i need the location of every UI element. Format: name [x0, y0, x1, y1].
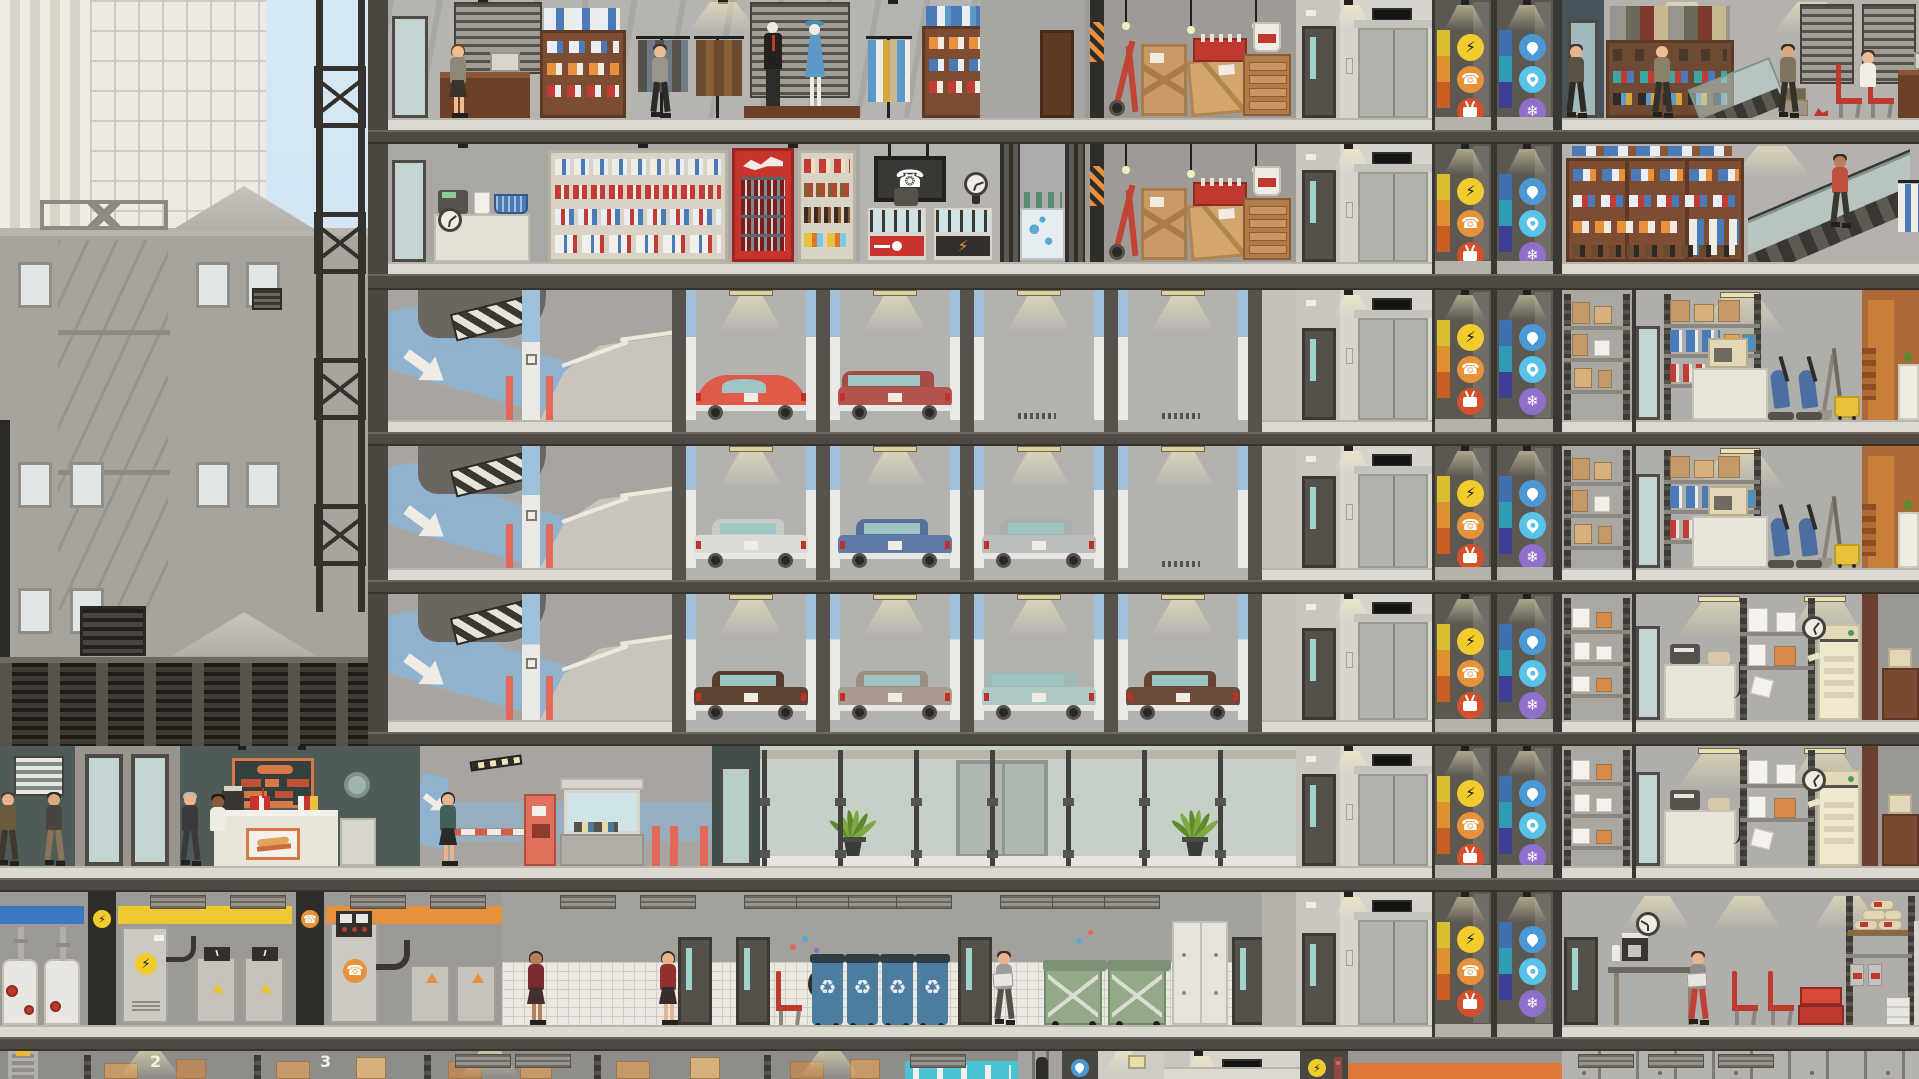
clothing-shopper[interactable] [649, 44, 671, 118]
electrical-riser[interactable]: ⚡☎ [1432, 290, 1494, 432]
mop-bucket [1834, 544, 1860, 566]
housekeeping-office[interactable] [1636, 290, 1862, 432]
curtain-mullion [990, 750, 995, 866]
pedestrian-1[interactable] [0, 792, 19, 866]
safety-post [546, 376, 553, 420]
parked-car-classic[interactable] [836, 667, 954, 719]
cafe-server[interactable] [207, 794, 229, 836]
electrical-riser[interactable]: ⚡☎ [1432, 0, 1494, 130]
pump-unit [2, 959, 38, 1025]
shaft-lamp [1461, 892, 1469, 897]
riser-stripe [1499, 82, 1512, 108]
taillight [696, 393, 701, 401]
room-door[interactable] [1232, 937, 1262, 1025]
dumpster[interactable] [1044, 967, 1102, 1025]
plumbing-riser[interactable]: ❄ [1494, 290, 1556, 432]
elevator-lobby[interactable] [1296, 144, 1434, 274]
shoe-shopper-1[interactable] [1565, 44, 1587, 118]
parked-car-wagon[interactable] [836, 367, 954, 419]
shaft-lamp [1461, 144, 1469, 149]
dress-rack[interactable] [866, 28, 912, 118]
leg [538, 1004, 542, 1020]
tower-wall [368, 594, 388, 732]
warehouse-shelving[interactable]: 234 [0, 1051, 905, 1079]
folded-stacks [547, 41, 619, 53]
elevator-lobby[interactable] [1296, 892, 1434, 1037]
door-split [1393, 30, 1395, 116]
shoe-shopper-2[interactable] [1651, 44, 1673, 118]
riser-stripe [1499, 502, 1512, 528]
shoe-cashier[interactable] [1857, 50, 1879, 92]
parked-car-wagon[interactable] [980, 667, 1098, 719]
equipment-box[interactable] [456, 965, 496, 1023]
cabinet-seam [1864, 1051, 1867, 1079]
exterior-scaffold [312, 0, 368, 612]
supply-closet[interactable] [1562, 446, 1632, 580]
meter-box[interactable] [196, 957, 236, 1023]
storage-box [616, 1061, 650, 1079]
floor-surface [1562, 866, 1632, 878]
cosmetics-stand[interactable] [1000, 144, 1085, 274]
folded-stacks [1573, 221, 1681, 233]
electrical-room[interactable]: ⚡ ⚡ [84, 892, 292, 1037]
plumbing-riser[interactable]: ❄ [1494, 446, 1556, 580]
office-sliver[interactable] [1862, 746, 1919, 878]
parking-level-1[interactable]: ⚡☎ ❄ [0, 290, 1919, 432]
room-door[interactable] [958, 937, 992, 1025]
maintenance-staff-2[interactable] [657, 951, 679, 1025]
light-glow [1007, 296, 1071, 332]
chair-leg [1871, 104, 1875, 118]
bay-column [1248, 446, 1262, 580]
electrical-riser[interactable]: ⚡☎ [1432, 594, 1494, 732]
game-viewport[interactable]: ⚡☎ ❄ [0, 0, 1919, 1079]
glass-door[interactable] [720, 766, 752, 866]
cafe-customer[interactable] [179, 792, 201, 866]
floor-surface [0, 1025, 84, 1037]
pump-unit [44, 959, 80, 1025]
elevator-lobby[interactable] [1296, 594, 1434, 732]
store-door[interactable] [392, 160, 426, 262]
mullion-clip [760, 798, 770, 806]
paper-stack [1776, 764, 1796, 784]
phone-icon: ☎ [1457, 66, 1484, 93]
cable-room[interactable] [1348, 1051, 1562, 1079]
service-door[interactable] [1636, 626, 1660, 720]
floor-retail-top[interactable]: ⚡☎ ❄ [0, 0, 1919, 130]
leg [180, 830, 190, 861]
spray-sparkle [1076, 938, 1082, 944]
elevator-lobby[interactable] [1296, 290, 1434, 432]
elevator-lobby[interactable] [1296, 746, 1434, 878]
clothing-clerk[interactable] [447, 44, 469, 118]
white-bucket [1253, 166, 1281, 196]
meter-box[interactable] [244, 957, 284, 1023]
ticket-machine[interactable] [524, 794, 556, 866]
supply-closet[interactable] [1562, 290, 1632, 432]
brick-rack [1862, 504, 1876, 556]
toolbox [1798, 1005, 1844, 1025]
core-wall [1262, 594, 1296, 732]
light-glow [719, 296, 783, 332]
dumpster-lid [1107, 960, 1171, 971]
plumbing-riser[interactable]: ❄ [1494, 0, 1556, 130]
stair-door[interactable] [1302, 774, 1336, 866]
telecom-room[interactable]: ☎ ☎ [292, 892, 502, 1037]
cafe-sliver[interactable] [1862, 446, 1919, 580]
bay-light [1161, 594, 1205, 600]
apparel-store[interactable] [1562, 144, 1919, 274]
storage-box [176, 1059, 206, 1079]
lobby-inner-door [956, 760, 1048, 858]
torso [46, 805, 62, 831]
office-sliver[interactable] [1862, 594, 1919, 732]
pillar-sign [526, 510, 537, 521]
basement-1[interactable]: ⚡ ⚡ ☎ [0, 892, 1919, 1037]
call-button-panel[interactable] [1346, 950, 1353, 966]
riser-stripe [1499, 346, 1512, 372]
parking-ramp[interactable] [388, 446, 672, 580]
cement-sack [1884, 910, 1902, 920]
riser-stripe [1437, 174, 1450, 200]
parked-car-classic[interactable] [1124, 667, 1242, 719]
leg [670, 1004, 674, 1020]
water-riser-door[interactable] [1062, 1051, 1098, 1079]
call-button-panel[interactable] [1346, 348, 1353, 364]
leg [1830, 192, 1840, 223]
parked-car-classic[interactable] [692, 667, 810, 719]
wheel [922, 705, 937, 720]
elevator-doors[interactable] [1358, 318, 1428, 420]
water-icon [1519, 926, 1546, 953]
flame-core [1529, 76, 1536, 83]
car-window [1152, 675, 1208, 686]
service-door[interactable] [1636, 474, 1660, 568]
parking-gate[interactable] [448, 746, 712, 878]
cabinet-seam [1636, 1051, 1639, 1079]
red-heels [1814, 108, 1828, 116]
clothing-store[interactable] [388, 0, 980, 130]
red-chair [1730, 971, 1760, 1025]
drop-shape [1073, 1061, 1086, 1074]
elevator-lobby[interactable] [1296, 0, 1434, 130]
dumpster-lid [1043, 960, 1107, 971]
parking-bays[interactable] [672, 446, 1262, 580]
shirt-stacks-top [926, 6, 980, 26]
glass-lobby[interactable] [760, 746, 1296, 878]
fax-machine [1670, 644, 1700, 664]
call-button-panel[interactable] [1346, 804, 1353, 820]
phone-icon: ☎ [1457, 356, 1484, 383]
stair-door[interactable] [1302, 628, 1336, 720]
floor-surface [1296, 568, 1434, 580]
elevator-doors[interactable] [1358, 172, 1428, 262]
flame-shape [1524, 963, 1540, 979]
recycling-bin[interactable]: ♻ [882, 961, 913, 1025]
mullion-clip [1139, 798, 1150, 806]
entrance-doors[interactable] [75, 746, 180, 878]
floor-surface [420, 866, 448, 878]
floor-surface [388, 262, 860, 274]
display-case[interactable] [866, 206, 928, 262]
stair-door[interactable] [1302, 476, 1336, 568]
copier-tray [1824, 802, 1854, 808]
plumbing-riser[interactable]: ❄ [1494, 892, 1556, 1037]
copy-room[interactable] [1636, 746, 1862, 878]
hanging-light [470, 754, 523, 771]
bay-column [1248, 290, 1262, 432]
elevator-doors[interactable] [1358, 622, 1428, 720]
recycling-room[interactable]: ♻♻♻♻ [730, 892, 950, 1037]
parking-ramp[interactable] [388, 594, 672, 732]
ceiling-vent [350, 895, 406, 909]
stair-door[interactable] [1302, 170, 1336, 262]
curtain-mullion [1218, 750, 1223, 866]
male-mannequin[interactable] [760, 22, 786, 106]
shoe [538, 1020, 546, 1025]
paper-stack [1748, 644, 1766, 666]
dumpsters[interactable] [1044, 955, 1174, 1025]
riser-stripe [1437, 346, 1450, 372]
floor-surface [448, 866, 712, 878]
pedestrian-2[interactable] [43, 792, 65, 866]
chair-leg [1839, 104, 1843, 118]
shaft-lamp [1461, 594, 1469, 599]
recycling-bins[interactable]: ♻♻♻♻ [812, 955, 948, 1025]
vacant-room[interactable] [980, 0, 1085, 130]
leg [1699, 989, 1709, 1020]
bay-light [873, 594, 917, 600]
chair-leg [1771, 1011, 1775, 1025]
clothes-rack[interactable] [1898, 170, 1919, 262]
parking-level-2[interactable]: ⚡☎ ❄ [0, 446, 1919, 580]
service-elevator[interactable] [1164, 1051, 1300, 1079]
bulb [1187, 26, 1195, 34]
floor-slab [368, 432, 1919, 446]
elevator-doors[interactable] [1358, 28, 1428, 118]
phone-icon: ☎ [1457, 210, 1484, 237]
wheel [708, 705, 723, 720]
clothes-rack[interactable] [694, 26, 744, 118]
rack-upright [254, 1055, 261, 1079]
security-booth[interactable] [560, 778, 644, 866]
leg [1789, 82, 1799, 113]
parking-bays[interactable] [672, 594, 1262, 732]
basement-hall[interactable] [1098, 1051, 1164, 1079]
riser-stripe [1499, 200, 1512, 226]
plumbing-riser[interactable]: ❄ [1494, 594, 1556, 732]
spray-sparkle [790, 944, 796, 950]
parking-ramp[interactable] [388, 290, 672, 432]
recycling-bin[interactable]: ♻ [847, 961, 878, 1025]
housekeeping-office[interactable] [1636, 446, 1862, 580]
parking-bays[interactable] [672, 290, 1262, 432]
drawer [1249, 62, 1287, 71]
bulb [1122, 22, 1130, 30]
hanging-bulb [1125, 144, 1127, 166]
store-door[interactable] [392, 16, 428, 118]
shoe [56, 861, 65, 866]
maintenance-staff-1[interactable] [525, 951, 547, 1025]
shoe-shopper-3[interactable] [1777, 44, 1799, 118]
phone-cabinet[interactable]: ☎ [330, 923, 378, 1023]
call-button-panel[interactable] [1346, 652, 1353, 668]
service-door[interactable] [1636, 772, 1660, 866]
floor-surface [1296, 118, 1434, 130]
beverage-cooler[interactable] [732, 148, 794, 262]
license-plate [1032, 541, 1046, 550]
clock-hand [1813, 629, 1817, 635]
stock-room[interactable] [1085, 144, 1296, 274]
convenience-store[interactable] [388, 144, 860, 274]
parked-car-sedan[interactable] [692, 515, 810, 567]
plumbing-riser[interactable]: ❄ [1494, 144, 1556, 274]
escalator-rider[interactable] [1829, 154, 1851, 228]
stock-box [1598, 526, 1612, 544]
shoe [1700, 1020, 1709, 1025]
recycling-bin[interactable]: ♻ [812, 961, 843, 1025]
paper-closet[interactable] [1562, 746, 1632, 878]
basement-2[interactable]: 234 [0, 1051, 1919, 1079]
rack-bar [1898, 180, 1919, 183]
stock-box [1572, 302, 1590, 324]
stair-door[interactable] [1302, 26, 1336, 118]
riser-stripe [1499, 174, 1512, 200]
torso [652, 57, 668, 83]
copy-room[interactable] [1636, 594, 1862, 732]
copier-tray [1824, 692, 1854, 698]
elevator-doors[interactable] [1358, 474, 1428, 568]
gate-arm[interactable] [448, 828, 526, 836]
plumbing-riser[interactable]: ❄ [1494, 746, 1556, 878]
transformer-cabinet[interactable]: ⚡ [122, 927, 168, 1023]
ground-floor[interactable]: ⚡☎ ❄ [0, 746, 1919, 878]
female-mannequin[interactable] [802, 22, 828, 106]
pump-room[interactable] [0, 892, 84, 1037]
paper-stack [1748, 796, 1766, 818]
room-door[interactable] [1564, 937, 1598, 1025]
parked-car-sedan[interactable] [980, 515, 1098, 567]
file-box [1774, 646, 1796, 666]
floor-surface [1164, 1067, 1300, 1079]
chair-leg [795, 1011, 801, 1025]
dark-figure [1036, 1057, 1048, 1079]
hvac-icon: ❄ [1519, 990, 1546, 1017]
warning-label [426, 973, 438, 983]
phone-store[interactable]: ☎ ⚡ [860, 144, 1000, 274]
elevator-doors[interactable] [1358, 920, 1428, 1025]
wall-clock [1636, 912, 1660, 936]
storage-bay-number: 3 [320, 1052, 331, 1071]
power-riser-door[interactable]: ⚡ [1300, 1051, 1348, 1079]
stock-box [1670, 300, 1690, 322]
lobby-visitor[interactable] [437, 792, 459, 866]
shoe [0, 860, 8, 865]
white-bucket [1253, 22, 1281, 52]
folded-stacks [1573, 195, 1739, 207]
riser-stripe [1437, 802, 1450, 828]
electrical-riser[interactable]: ⚡☎ [1432, 446, 1494, 580]
door-lintel [1354, 912, 1432, 920]
call-button-panel[interactable] [1346, 504, 1353, 520]
glass-door[interactable] [85, 754, 123, 866]
leg [664, 1004, 668, 1020]
electrical-riser[interactable]: ⚡☎ [1432, 892, 1494, 1037]
drawer [1249, 101, 1287, 110]
panel-gauge [356, 914, 368, 923]
call-button-panel[interactable] [1346, 58, 1353, 74]
phone-icon: ☎ [1457, 512, 1484, 539]
wall-clock [964, 172, 988, 196]
riser-stripe [1499, 30, 1512, 56]
worker-on-break[interactable] [1687, 951, 1709, 1025]
riser-stripe [1437, 828, 1450, 854]
flame-core [1529, 670, 1536, 677]
pot-rim [1182, 837, 1208, 842]
electrical-riser[interactable]: ⚡☎ [1432, 144, 1494, 274]
glass-door[interactable] [131, 754, 169, 866]
stair-door[interactable] [1302, 933, 1336, 1025]
car-window [992, 675, 1064, 686]
service-door[interactable] [1636, 326, 1660, 420]
vacuum-cleaner [1796, 356, 1822, 420]
shelf [1846, 954, 1912, 958]
display-case[interactable]: ⚡ [932, 206, 994, 262]
recycling-bin[interactable]: ♻ [917, 961, 948, 1025]
slat-rack [1065, 144, 1085, 262]
parked-car-beetle[interactable] [692, 367, 810, 419]
riser-stripe [1499, 676, 1512, 702]
stock-room[interactable] [1085, 0, 1296, 130]
cafe-sliver[interactable] [1862, 290, 1919, 432]
corridor-door[interactable] [678, 937, 712, 1025]
ceiling-lamp [1344, 446, 1353, 451]
leg [1841, 192, 1851, 223]
shelf-upright [1564, 294, 1571, 420]
taillight [801, 541, 806, 549]
paper-closet[interactable] [1562, 594, 1632, 732]
taillight [945, 693, 950, 701]
scaffold-xbox [314, 66, 366, 128]
electrical-riser[interactable]: ⚡☎ [1432, 746, 1494, 878]
light-glow [1151, 600, 1215, 636]
room-door[interactable] [736, 937, 770, 1025]
floor-retail-2[interactable]: ☎ ⚡ [0, 144, 1919, 274]
stair-door[interactable] [1302, 328, 1336, 420]
valve-wheel [6, 985, 18, 997]
sidewalk [712, 866, 760, 878]
elevator-doors[interactable] [1358, 774, 1428, 866]
bucket-label [1853, 973, 1862, 979]
parking-level-3[interactable]: ⚡☎ ❄ [0, 594, 1919, 732]
janitor[interactable] [993, 951, 1015, 1025]
elevator-lobby[interactable] [1296, 446, 1434, 580]
mullion-clip [1139, 850, 1150, 858]
dumpster[interactable] [1108, 967, 1166, 1025]
wood-door[interactable] [1040, 30, 1074, 118]
hand-truck [1107, 184, 1141, 260]
bay-column [816, 290, 830, 432]
equipment-box[interactable] [410, 965, 450, 1023]
call-button-panel[interactable] [1346, 202, 1353, 218]
storage-box [356, 1057, 386, 1079]
ceiling-lamp [1344, 594, 1353, 599]
break-room[interactable] [1562, 892, 1919, 1037]
grocery-shelf-2[interactable] [798, 150, 856, 262]
jug-row [555, 235, 721, 253]
grocery-shelf[interactable] [548, 150, 728, 262]
parked-car-sedan[interactable] [836, 515, 954, 567]
